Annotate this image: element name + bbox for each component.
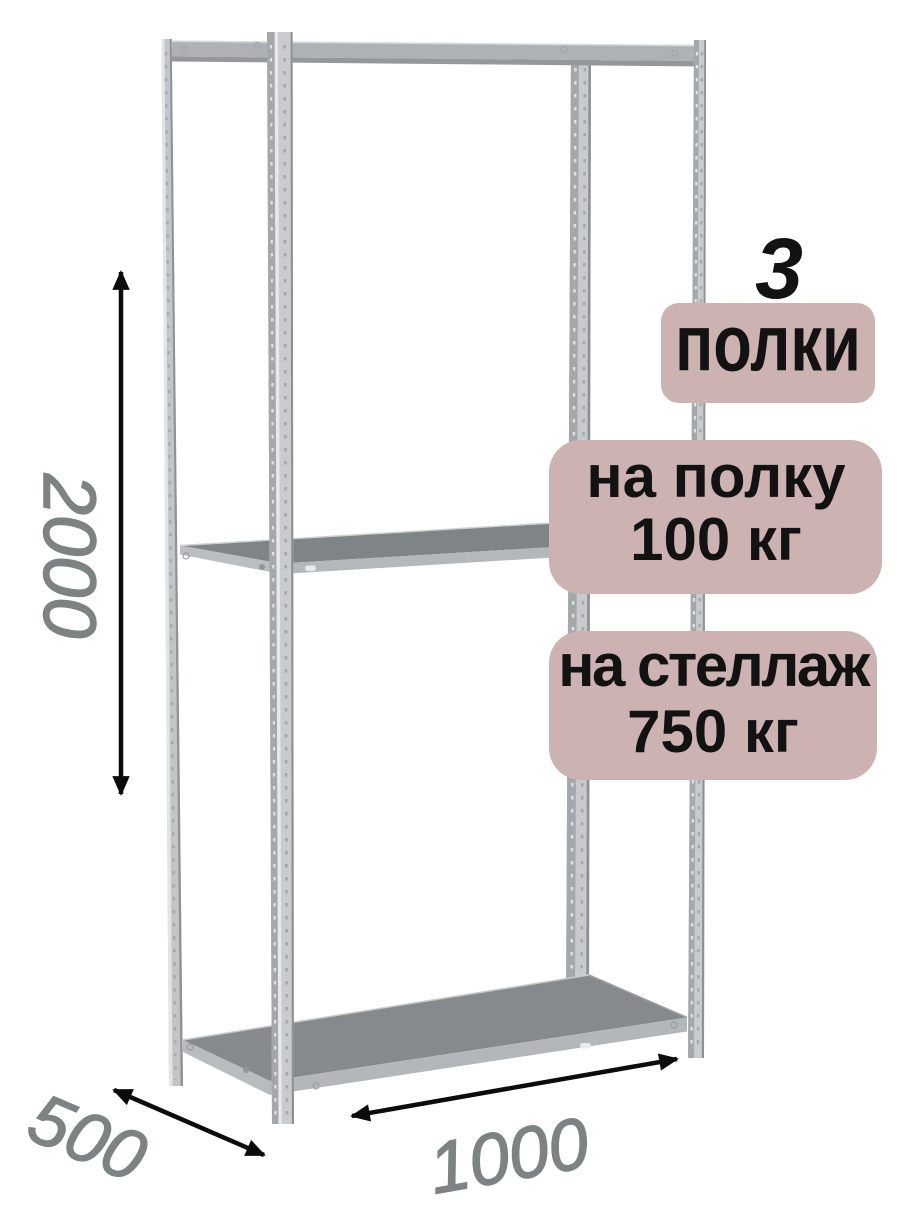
svg-text:100 кг: 100 кг bbox=[630, 506, 802, 573]
svg-text:на стеллаж: на стеллаж bbox=[558, 632, 872, 699]
svg-text:на полку: на полку bbox=[586, 443, 846, 510]
svg-text:3: 3 bbox=[755, 221, 803, 317]
svg-text:2000: 2000 bbox=[28, 473, 111, 639]
svg-text:750 кг: 750 кг bbox=[627, 698, 799, 765]
